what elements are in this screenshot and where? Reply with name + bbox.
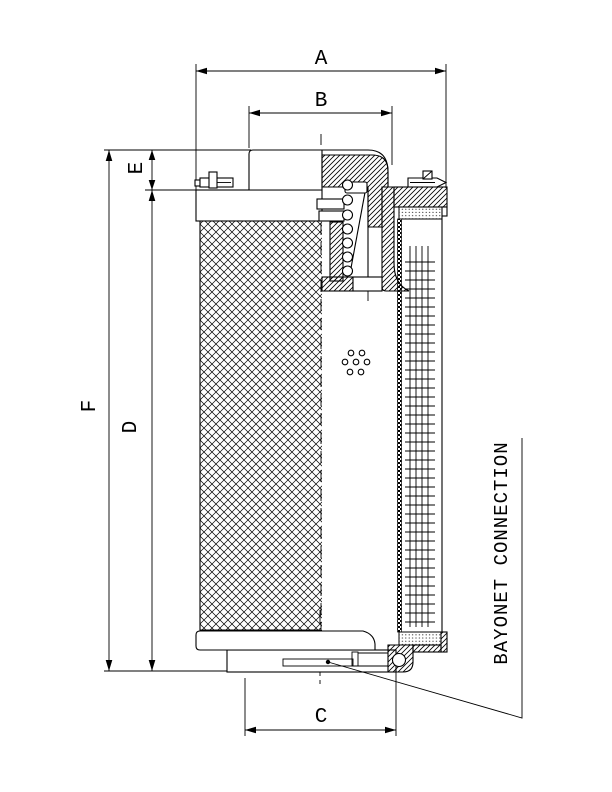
dim-label-b: B <box>315 90 328 113</box>
dim-label-c: C <box>315 706 328 729</box>
dim-c-arrow-left <box>245 727 256 734</box>
dim-b-arrow-right <box>381 110 392 117</box>
valve-seat-section <box>322 277 353 291</box>
hole <box>364 359 370 365</box>
pin-left-post <box>209 172 217 188</box>
spring-coil <box>343 266 353 276</box>
spring-coil <box>343 238 353 248</box>
dim-c-arrow-right <box>385 727 396 734</box>
valve-seat-opening <box>353 277 382 291</box>
spring-coil <box>343 224 353 234</box>
o-ring-section <box>393 654 406 667</box>
dim-label-d: D <box>120 421 143 434</box>
spring-retainer-prong-2 <box>319 211 344 221</box>
hole <box>347 369 353 375</box>
spring-coil <box>343 195 353 205</box>
wire-mesh-rungs <box>405 260 435 624</box>
dim-e-arrow-top <box>149 150 156 160</box>
spring-retainer-prong-1 <box>317 199 344 209</box>
perforated-core-strip <box>398 219 402 632</box>
dimension-d: D <box>120 190 155 671</box>
dimension-c: C <box>245 669 396 736</box>
bottom-end-cap <box>196 631 413 672</box>
core-perforation-holes <box>342 350 370 375</box>
bayonet-pin-left <box>195 172 233 188</box>
top-cap-flange <box>196 190 322 221</box>
dim-f-arrow-top <box>106 150 113 161</box>
dim-e-arrow-bottom <box>149 180 156 190</box>
spring-coil <box>343 252 353 262</box>
top-cap-raised <box>249 150 322 190</box>
valve-inner-wall-section <box>330 222 343 281</box>
dim-a-arrow-left <box>196 68 207 75</box>
valve-spring-coils <box>343 180 353 276</box>
technical-drawing-page: A B E F D C <box>0 0 612 792</box>
filter-media-hatch <box>200 221 322 630</box>
dim-label-f: F <box>79 400 102 413</box>
outer-element-view <box>398 207 448 652</box>
filter-media-section <box>200 221 322 630</box>
gasket-top <box>399 207 442 219</box>
flange-section <box>394 187 447 207</box>
dim-b-arrow-left <box>249 110 260 117</box>
dim-label-e: E <box>126 162 149 175</box>
spring-coil <box>343 210 353 220</box>
dim-f-arrow-bottom <box>106 660 113 671</box>
dim-d-arrow-bottom <box>149 660 156 671</box>
gasket-bottom <box>399 632 441 645</box>
hole <box>353 359 359 365</box>
dim-a-arrow-right <box>435 68 446 75</box>
bottom-rim-band <box>413 645 441 652</box>
callout-text: BAYONET CONNECTION <box>491 441 513 664</box>
bottom-cap-upper-plate <box>196 631 375 650</box>
bottom-rim <box>441 632 447 652</box>
flange-step <box>442 207 447 216</box>
bypass-valve-assembly <box>317 155 409 291</box>
hole <box>359 350 365 356</box>
dim-label-a: A <box>315 48 328 71</box>
spring-diagonal <box>351 187 366 268</box>
spring-coil <box>343 180 353 190</box>
bayonet-pin-right <box>408 171 446 187</box>
hole <box>342 359 348 365</box>
hole <box>348 350 354 356</box>
filter-element-drawing: A B E F D C <box>0 0 612 792</box>
pin-left-stub <box>195 180 200 186</box>
dim-d-arrow-top <box>149 190 156 201</box>
hole <box>358 369 364 375</box>
